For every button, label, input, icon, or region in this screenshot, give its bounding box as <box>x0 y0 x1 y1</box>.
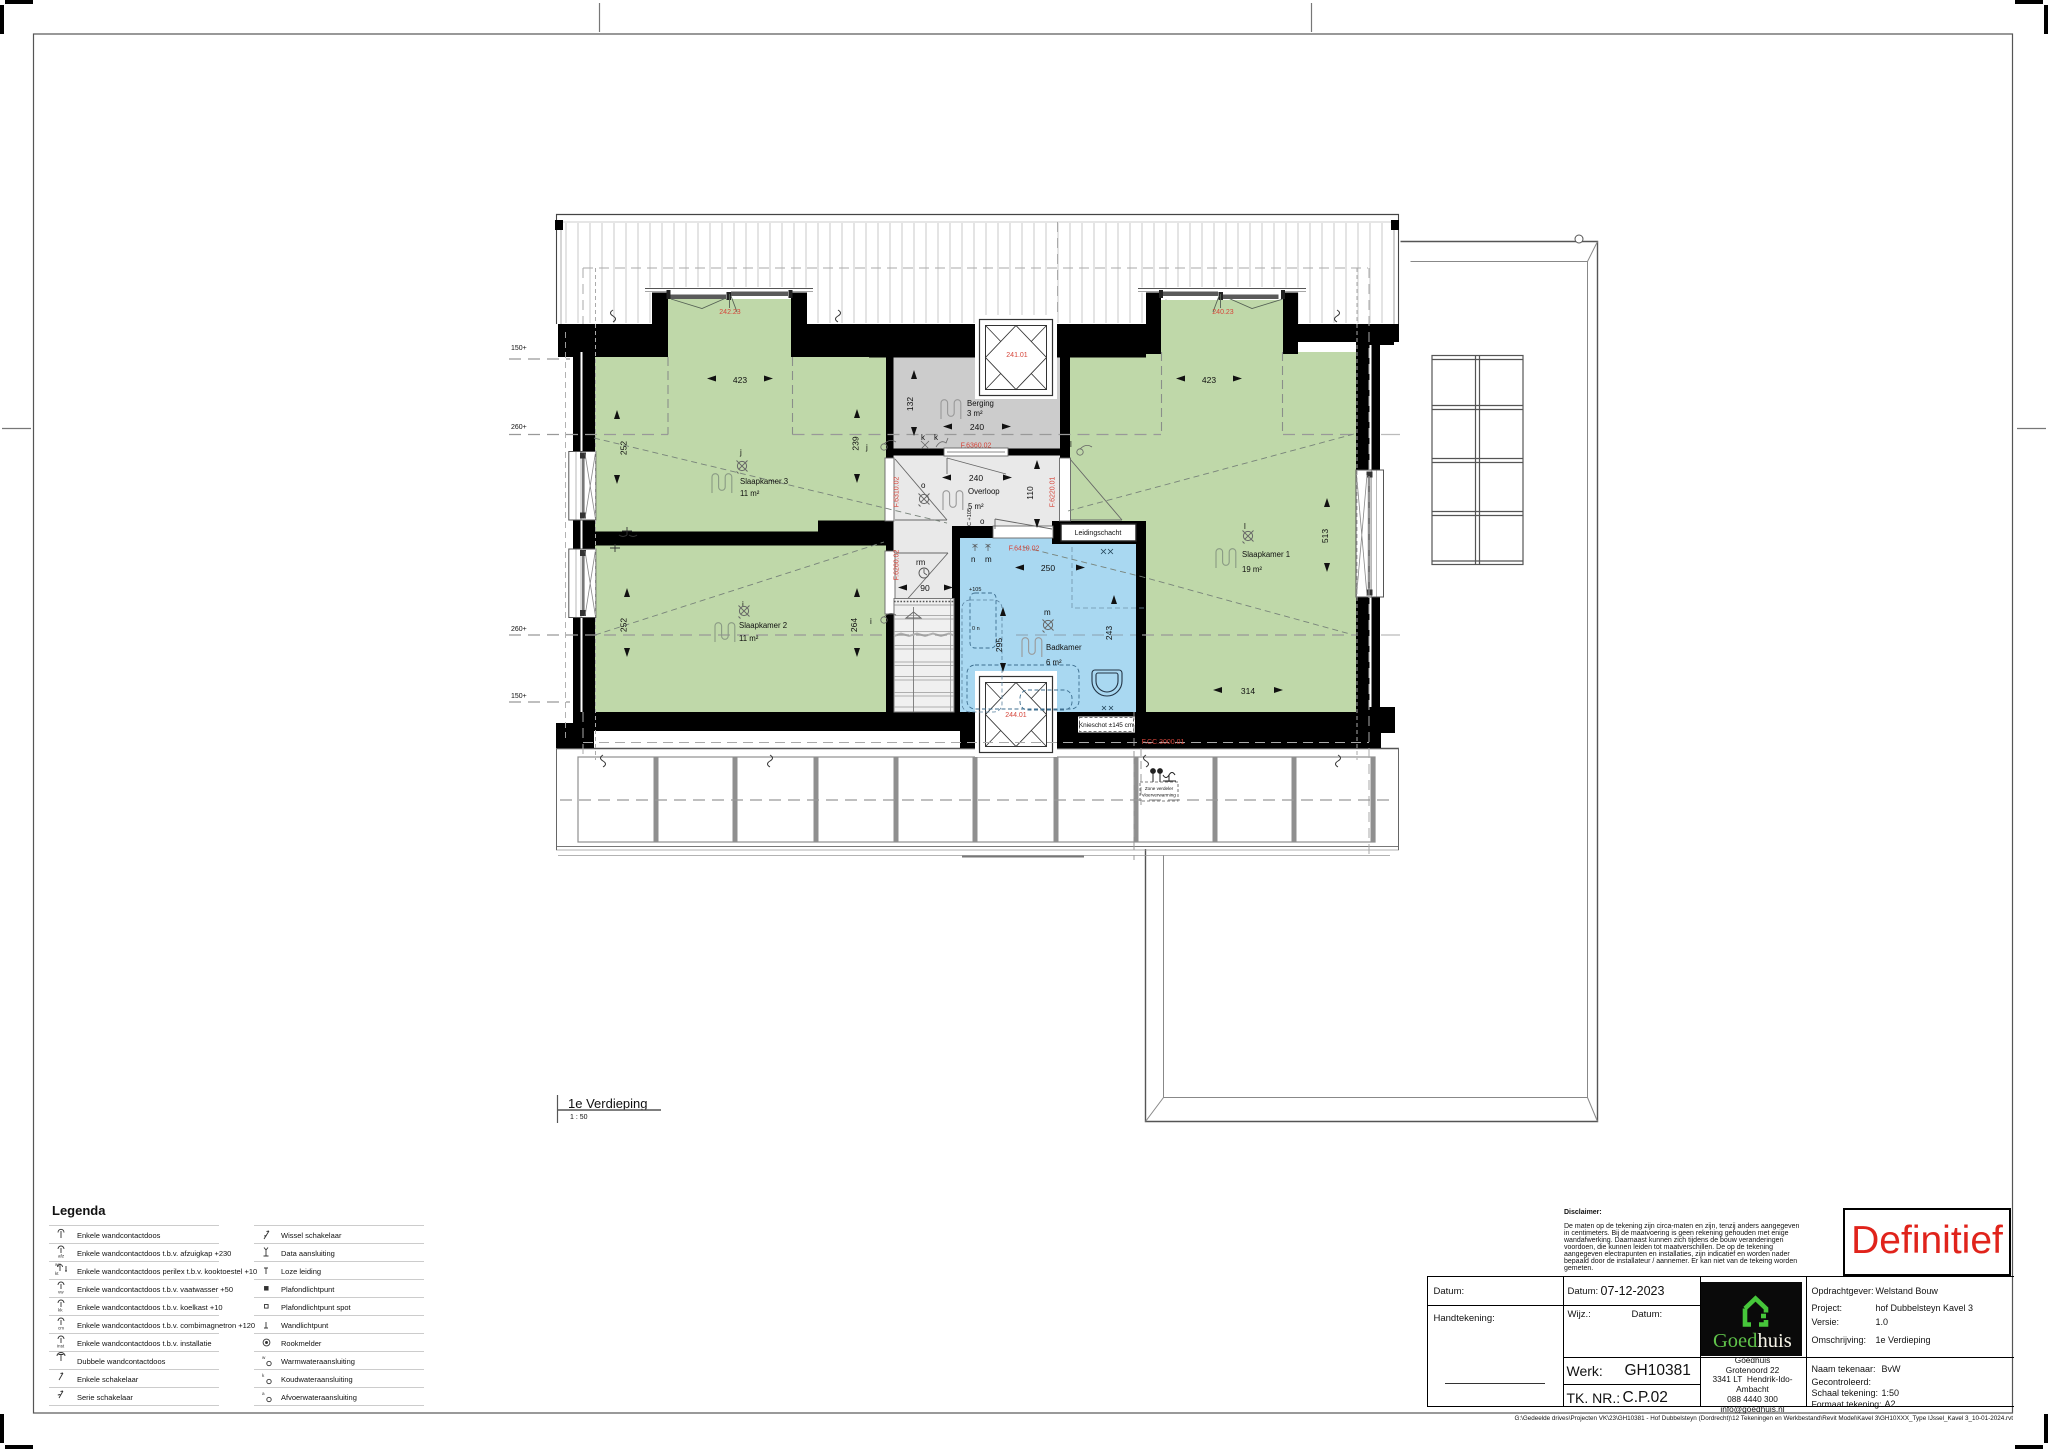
svg-text:w: w <box>262 1355 266 1360</box>
svg-text:i: i <box>742 600 744 609</box>
svg-text:240: 240 <box>970 422 984 432</box>
svg-text:F.6410.02: F.6410.02 <box>1009 546 1040 553</box>
svg-text:Slaapkamer 1: Slaapkamer 1 <box>1242 550 1290 559</box>
svg-text:j: j <box>739 448 742 457</box>
svg-text:+105: +105 <box>969 587 981 593</box>
svg-text:i: i <box>870 617 872 626</box>
svg-text:k: k <box>262 1373 265 1378</box>
svg-text:C +105: C +105 <box>967 508 973 526</box>
svg-text:260+: 260+ <box>511 424 527 431</box>
svg-text:0 n: 0 n <box>972 626 980 632</box>
svg-text:kt: kt <box>55 1271 59 1276</box>
svg-text:vw: vw <box>58 1290 64 1295</box>
svg-text:11 m²: 11 m² <box>739 634 759 643</box>
svg-text:3 m²: 3 m² <box>967 409 983 418</box>
svg-text:Goed: Goed <box>1713 1330 1757 1352</box>
svg-text:295: 295 <box>994 638 1004 652</box>
svg-text:F.CC.3000.01: F.CC.3000.01 <box>1142 739 1185 746</box>
svg-text:F.6220.01: F.6220.01 <box>1050 477 1057 508</box>
svg-text:252: 252 <box>619 441 629 455</box>
svg-text:a: a <box>262 1391 265 1396</box>
svg-text:19 m²: 19 m² <box>1242 565 1262 574</box>
svg-text:260+: 260+ <box>511 626 527 633</box>
svg-text:244.01: 244.01 <box>1005 712 1027 719</box>
svg-text:huis: huis <box>1757 1330 1791 1352</box>
svg-text:afz: afz <box>58 1254 65 1259</box>
svg-text:423: 423 <box>733 375 747 385</box>
svg-text:240: 240 <box>969 473 983 483</box>
svg-text:F.6310.02: F.6310.02 <box>894 477 901 508</box>
svg-text:314: 314 <box>1241 686 1255 696</box>
svg-text:rm: rm <box>916 558 926 567</box>
svg-text:264: 264 <box>849 618 859 632</box>
svg-text:m: m <box>1044 608 1051 617</box>
svg-text:F.6360.02: F.6360.02 <box>961 443 992 450</box>
svg-text:132: 132 <box>905 397 915 411</box>
svg-text:239: 239 <box>851 436 861 450</box>
svg-text:F.6260.02: F.6260.02 <box>894 550 901 581</box>
svg-text:cm: cm <box>58 1326 64 1331</box>
svg-text:6 m²: 6 m² <box>1046 658 1062 667</box>
svg-text:m: m <box>985 555 992 564</box>
svg-text:o: o <box>921 481 926 490</box>
svg-text:Overloop: Overloop <box>968 487 1000 496</box>
svg-text:n: n <box>971 555 975 564</box>
svg-text:inst: inst <box>57 1344 65 1349</box>
svg-text:Badkamer: Badkamer <box>1046 643 1082 652</box>
svg-text:241.01: 241.01 <box>1006 352 1028 359</box>
svg-text:423: 423 <box>1202 375 1216 385</box>
svg-text:1 : 50: 1 : 50 <box>570 1114 588 1121</box>
svg-text:243: 243 <box>1104 626 1114 640</box>
svg-text:o: o <box>980 517 985 526</box>
svg-text:Slaapkamer 3: Slaapkamer 3 <box>740 477 788 486</box>
svg-text:110: 110 <box>1025 486 1035 500</box>
svg-text:240.23: 240.23 <box>1212 309 1234 316</box>
svg-text:Berging: Berging <box>967 399 994 408</box>
svg-text:kk: kk <box>58 1308 63 1313</box>
svg-text:l: l <box>1070 440 1072 449</box>
svg-text:Slaapkamer 2: Slaapkamer 2 <box>739 621 787 630</box>
svg-text:vloerverwarming: vloerverwarming <box>1142 793 1176 798</box>
svg-text:90: 90 <box>920 583 930 593</box>
svg-text:l: l <box>1244 522 1246 531</box>
svg-text:252: 252 <box>619 618 629 632</box>
svg-text:Leidingschacht: Leidingschacht <box>1075 530 1122 537</box>
svg-text:wp: wp <box>55 1262 61 1267</box>
svg-text:j: j <box>865 443 868 452</box>
svg-text:Zone verdeler: Zone verdeler <box>1145 786 1174 791</box>
svg-text:250: 250 <box>1041 563 1055 573</box>
svg-text:513: 513 <box>1320 529 1330 543</box>
svg-text:11 m²: 11 m² <box>740 489 760 498</box>
svg-text:150+: 150+ <box>511 345 527 352</box>
svg-text:Knieschot ±145 cm: Knieschot ±145 cm <box>1079 722 1133 729</box>
svg-text:150+: 150+ <box>511 693 527 700</box>
svg-text:242.23: 242.23 <box>719 309 741 316</box>
svg-text:1e Verdieping: 1e Verdieping <box>568 1096 648 1111</box>
